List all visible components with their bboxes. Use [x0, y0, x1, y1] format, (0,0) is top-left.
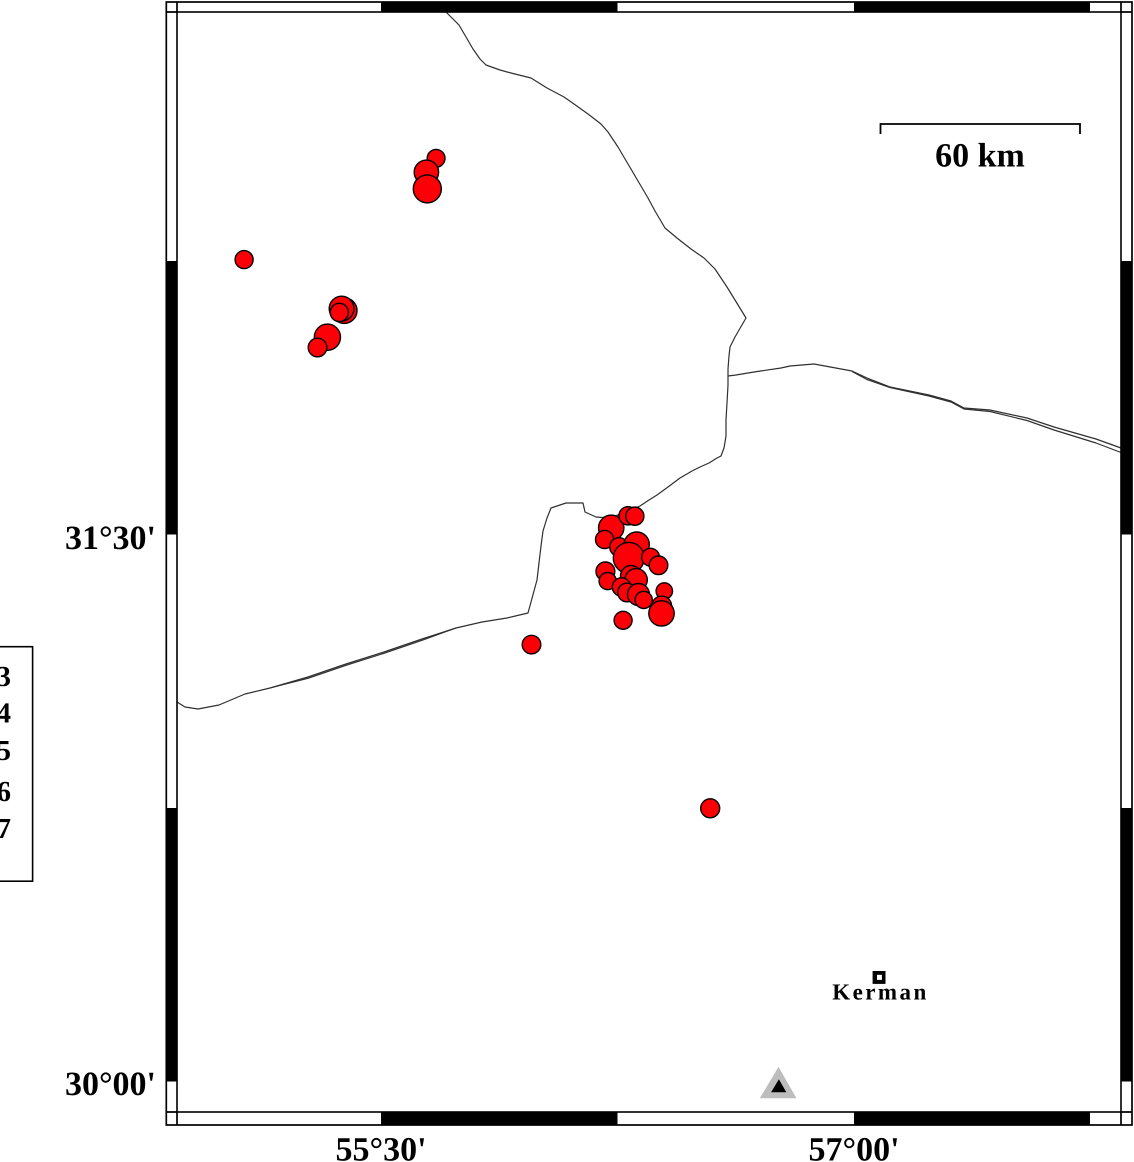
- svg-text:57°00': 57°00': [808, 1132, 899, 1162]
- svg-text:60 km: 60 km: [935, 138, 1025, 175]
- svg-text:Kerman: Kerman: [832, 980, 928, 1005]
- svg-text:30°00': 30°00': [65, 1066, 156, 1103]
- svg-text:6: 6: [0, 776, 11, 808]
- svg-text:3: 3: [0, 661, 11, 693]
- svg-text:31°30': 31°30': [65, 520, 156, 557]
- svg-text:7: 7: [0, 813, 11, 845]
- svg-text:55°30': 55°30': [335, 1132, 426, 1162]
- svg-text:5: 5: [0, 735, 11, 767]
- svg-text:4: 4: [0, 698, 11, 730]
